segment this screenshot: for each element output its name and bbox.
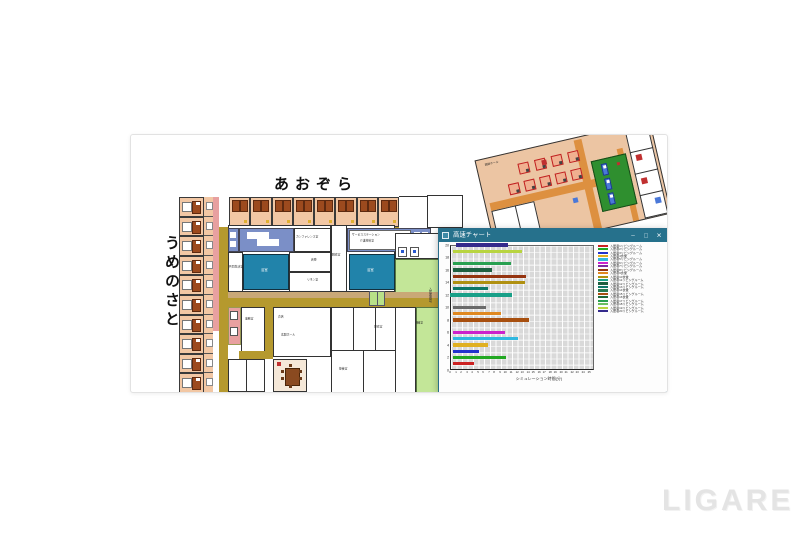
- x-tick-label: 4: [471, 371, 474, 374]
- lamp-icon: [393, 220, 396, 223]
- pillow-icon: [196, 280, 200, 283]
- entrance-label: 玄関ホール: [281, 333, 295, 336]
- resident-room: [229, 197, 250, 227]
- service-station-label: サービスステーション: [352, 233, 380, 236]
- y-tick-label: 4: [445, 344, 449, 346]
- bed-icon: [283, 200, 291, 212]
- bed-icon: [253, 200, 261, 212]
- legend-color-dash: [598, 255, 608, 257]
- resident-room: [272, 197, 293, 227]
- x-tick-label: 14: [526, 371, 529, 374]
- y-tick-label: 16: [445, 269, 449, 271]
- wall-line: [353, 307, 354, 350]
- y-tick-label: 2: [445, 356, 449, 358]
- chair-icon: [289, 364, 292, 367]
- x-tick-label: 15: [532, 371, 535, 374]
- toilet-cell: [204, 354, 213, 374]
- close-button[interactable]: ✕: [654, 231, 664, 240]
- x-tick-label: 12: [515, 371, 518, 374]
- toilet-icon: [182, 222, 192, 232]
- gantt-bar: [453, 362, 474, 365]
- resident-room: [293, 197, 314, 227]
- toilet-icon: [182, 378, 192, 388]
- mini-beds: [592, 154, 635, 206]
- chart-window-title: 高速チャート: [453, 230, 491, 239]
- minimize-button[interactable]: –: [628, 231, 638, 240]
- pillow-icon: [196, 339, 200, 342]
- living-room-left: [228, 252, 243, 292]
- toilet-icon: [182, 261, 192, 271]
- wall-line: [375, 307, 376, 350]
- storage-label: 倉庫: [311, 258, 317, 261]
- toilet-cell: [204, 256, 213, 276]
- table-icon: [570, 168, 583, 181]
- chair-icon: [281, 370, 284, 373]
- bed-icon: [368, 200, 376, 212]
- x-tick-label: 22: [570, 371, 573, 374]
- legend-color-dash: [598, 286, 608, 288]
- service-station-label2: 介護材料室: [360, 239, 374, 242]
- x-tick-label: 0: [449, 371, 452, 374]
- dining-room: [273, 359, 307, 392]
- wall-line: [246, 359, 247, 392]
- exit-cell-divider: [377, 291, 378, 306]
- office-label: 事務室: [245, 317, 253, 320]
- bed-icon: [240, 200, 248, 212]
- legend-color-dash: [598, 272, 608, 274]
- x-tick-label: 24: [581, 371, 584, 374]
- maximize-button[interactable]: □: [641, 231, 651, 240]
- chart-window: 高速チャート – □ ✕ 02468101214161820 入居者番号 012…: [438, 228, 668, 392]
- resident-room: [179, 236, 204, 256]
- chair-icon: [289, 385, 292, 388]
- pillow-icon: [196, 261, 200, 264]
- bed-icon: [338, 200, 346, 212]
- lamp-icon: [351, 220, 354, 223]
- legend-color-dash: [598, 265, 608, 267]
- x-tick-label: 1: [454, 371, 457, 374]
- chair-icon: [299, 370, 302, 373]
- bed-icon: [604, 177, 613, 190]
- lamp-icon: [287, 220, 290, 223]
- legend-color-dash: [598, 245, 608, 247]
- x-tick-label: 10: [504, 371, 507, 374]
- terrace-shape: [247, 232, 269, 239]
- bed-icon: [317, 200, 325, 212]
- toilet-icon: [182, 339, 192, 349]
- bed-icon: [601, 163, 610, 176]
- lamp-icon: [244, 220, 247, 223]
- gantt-bar: [453, 331, 506, 334]
- bed-icon: [381, 200, 389, 212]
- gantt-bar: [453, 306, 486, 309]
- terrace-shape: [257, 239, 279, 246]
- resident-room: [179, 295, 204, 315]
- bath-room-left: [243, 254, 289, 290]
- person-icon: [277, 362, 281, 366]
- resident-room: [179, 373, 204, 393]
- shop-label: 売店: [278, 315, 284, 318]
- wheelchair-icon: [573, 197, 579, 203]
- toilet-cell: [204, 217, 213, 237]
- resident-room: [335, 197, 356, 227]
- resident-room: [179, 315, 204, 335]
- corridor-vertical-left: [219, 227, 228, 393]
- courtyard-room: [427, 195, 463, 228]
- pillow-icon: [196, 300, 200, 303]
- table-icon: [523, 179, 536, 192]
- table-icon: [555, 171, 568, 184]
- legend-color-dash: [598, 279, 608, 281]
- bed-icon: [296, 200, 304, 212]
- bed-icon: [304, 200, 312, 212]
- toilet-cell: [204, 236, 213, 256]
- toilet-icon: [401, 250, 404, 253]
- resident-room: [179, 354, 204, 374]
- legend-color-dash: [598, 296, 608, 298]
- toilet-icon: [182, 359, 192, 369]
- pillow-icon: [196, 202, 200, 205]
- resident-room: [179, 256, 204, 276]
- office-room: [241, 307, 265, 357]
- toilet-icon: [182, 320, 192, 330]
- toilet-icon: [182, 241, 192, 251]
- wall-line: [363, 350, 364, 393]
- storage-room: [289, 252, 331, 272]
- bed-icon: [325, 200, 333, 212]
- rest-label: 静養室: [339, 367, 347, 370]
- legend-color-dash: [598, 282, 608, 284]
- resident-room: [179, 197, 204, 217]
- y-axis-label: 入居者番号: [428, 287, 432, 303]
- resident-room: [250, 197, 271, 227]
- x-tick-label: 7: [487, 371, 490, 374]
- pillow-icon: [196, 222, 200, 225]
- x-tick-label: 2: [460, 371, 463, 374]
- pillow-icon: [196, 378, 200, 381]
- toilet-icon: [182, 280, 192, 290]
- toilet-cell: [230, 311, 238, 320]
- bath-room-right: [349, 254, 395, 290]
- terrace-cell: [230, 232, 236, 238]
- x-tick-label: 25: [587, 371, 590, 374]
- conference-room: [294, 228, 331, 252]
- left-toilet-cells: [204, 197, 213, 393]
- table-icon: [517, 161, 530, 174]
- unit-label-aozora: あおぞら: [274, 173, 358, 194]
- wall-line: [395, 307, 396, 393]
- legend-color-dash: [598, 289, 608, 291]
- x-tick-label: 13: [521, 371, 524, 374]
- left-resident-rooms: [179, 197, 204, 393]
- terrace-cell: [230, 241, 236, 247]
- y-tick-label: 10: [445, 306, 449, 308]
- toilet-cell: [204, 315, 213, 335]
- gantt-bar: [453, 262, 511, 265]
- bed-icon: [346, 200, 354, 212]
- pillow-icon: [196, 359, 200, 362]
- chart-body: 02468101214161820 入居者番号 0123456789101112…: [439, 242, 667, 392]
- gantt-bar: [450, 293, 512, 296]
- legend-label: 入居者20リビングルーム: [610, 310, 644, 313]
- y-tick-label: 14: [445, 281, 449, 283]
- legend-color-dash: [598, 307, 608, 309]
- toilet-cell: [230, 327, 238, 336]
- lamp-icon: [329, 220, 332, 223]
- legend-color-dash: [598, 300, 608, 302]
- mini-hall-label: 談話ホール: [484, 160, 498, 166]
- toilet-cell: [204, 373, 213, 393]
- toilet-icon: [413, 250, 416, 253]
- gantt-bar: [456, 243, 509, 246]
- toilet-cell: [204, 197, 213, 217]
- toilet-icon: [182, 300, 192, 310]
- x-tick-label: 19: [554, 371, 557, 374]
- living-left-label: 共同生活室: [229, 265, 243, 268]
- bed-icon: [261, 200, 269, 212]
- x-tick-label: 20: [559, 371, 562, 374]
- linen-room: [289, 272, 331, 292]
- bath-right-label: 浴室: [367, 268, 374, 272]
- bed-icon: [607, 192, 616, 205]
- legend-color-dash: [598, 303, 608, 305]
- bed-icon: [232, 200, 240, 212]
- legend-color-dash: [598, 310, 608, 312]
- resident-room: [357, 197, 378, 227]
- ligare-watermark: LIGARE: [662, 484, 793, 518]
- linen-label: リネン室: [307, 278, 318, 281]
- y-tick-label: 18: [445, 256, 449, 258]
- x-tick-label: 17: [543, 371, 546, 374]
- resident-room: [378, 197, 399, 227]
- toilet-cell: [204, 334, 213, 354]
- screenshot-image: あおぞら うめのさと カンファレンス室 浴室 共同生活室 倉庫 リネン室: [130, 134, 668, 393]
- x-tick-label: 18: [548, 371, 551, 374]
- gantt-bar: [453, 318, 529, 321]
- bed-icon: [360, 200, 368, 212]
- legend-color-dash: [598, 258, 608, 260]
- gantt-bar: [453, 287, 488, 290]
- bed-icon: [275, 200, 283, 212]
- resident-room: [314, 197, 335, 227]
- lamp-icon: [308, 220, 311, 223]
- y-tick-label: 12: [445, 294, 449, 296]
- y-tick-label: 20: [445, 244, 449, 246]
- corridor-horizontal-middle: [219, 298, 463, 307]
- x-tick-label: 9: [498, 371, 501, 374]
- toilet-cell: [204, 275, 213, 295]
- toilet-icon: [182, 202, 192, 212]
- toilet-cell: [204, 295, 213, 315]
- x-tick-label: 5: [476, 371, 479, 374]
- y-tick-label: 8: [445, 319, 449, 321]
- dressing-label: 脱衣室: [332, 253, 340, 256]
- gantt-bar: [453, 312, 501, 315]
- gantt-bar: [453, 268, 492, 271]
- legend-color-dash: [598, 293, 608, 295]
- x-tick-label: 3: [465, 371, 468, 374]
- mini-green-room: [591, 153, 638, 212]
- gantt-bar: [453, 343, 488, 346]
- table-icon: [285, 368, 300, 386]
- bed-icon: [389, 200, 397, 212]
- corridor-horizontal-entrance: [239, 351, 273, 359]
- gantt-bar: [453, 356, 507, 359]
- legend-item: 入居者20リビングルーム: [598, 309, 666, 312]
- dressing-room: [331, 225, 347, 292]
- y-tick-label: 6: [445, 331, 449, 333]
- x-tick-label: 21: [565, 371, 568, 374]
- x-axis-label: シミュレーション時間(分): [509, 376, 569, 382]
- x-tick-label: 23: [576, 371, 579, 374]
- chair-icon: [299, 377, 302, 380]
- x-tick-label: 6: [482, 371, 485, 374]
- gantt-bar: [453, 281, 525, 284]
- chart-app-icon: [442, 232, 449, 239]
- chair-icon: [281, 377, 284, 380]
- bath-left-label: 浴室: [261, 268, 268, 272]
- gantt-bar: [453, 275, 527, 278]
- resident-room: [179, 217, 204, 237]
- conference-room-label: カンファレンス室: [296, 235, 318, 238]
- page: あおぞら うめのさと カンファレンス室 浴室 共同生活室 倉庫 リネン室: [0, 0, 800, 533]
- chart-legend: 入居者1リビングルーム入居者2リビングルーム入居者3リビングルーム入居者4食堂入…: [598, 244, 666, 313]
- x-tick-label: 16: [537, 371, 540, 374]
- gantt-bar: [453, 250, 522, 253]
- legend-color-dash: [598, 269, 608, 271]
- legend-color-dash: [598, 248, 608, 250]
- resident-room: [179, 334, 204, 354]
- lamp-icon: [372, 220, 375, 223]
- top-resident-rooms: [229, 197, 399, 227]
- gantt-bar: [453, 337, 518, 340]
- chart-window-titlebar[interactable]: 高速チャート – □ ✕: [439, 229, 667, 242]
- lamp-icon: [266, 220, 269, 223]
- legend-color-dash: [598, 262, 608, 264]
- x-tick-label: 8: [493, 371, 496, 374]
- legend-color-dash: [598, 276, 608, 278]
- pillow-icon: [196, 241, 200, 244]
- table-icon: [551, 154, 564, 167]
- pillow-icon: [196, 320, 200, 323]
- gantt-bar: [453, 350, 480, 353]
- table-icon: [508, 182, 521, 195]
- legend-color-dash: [598, 252, 608, 254]
- changing-label: 更衣室: [374, 325, 382, 328]
- table-icon: [539, 175, 552, 188]
- resident-room: [179, 275, 204, 295]
- x-tick-label: 11: [509, 371, 512, 374]
